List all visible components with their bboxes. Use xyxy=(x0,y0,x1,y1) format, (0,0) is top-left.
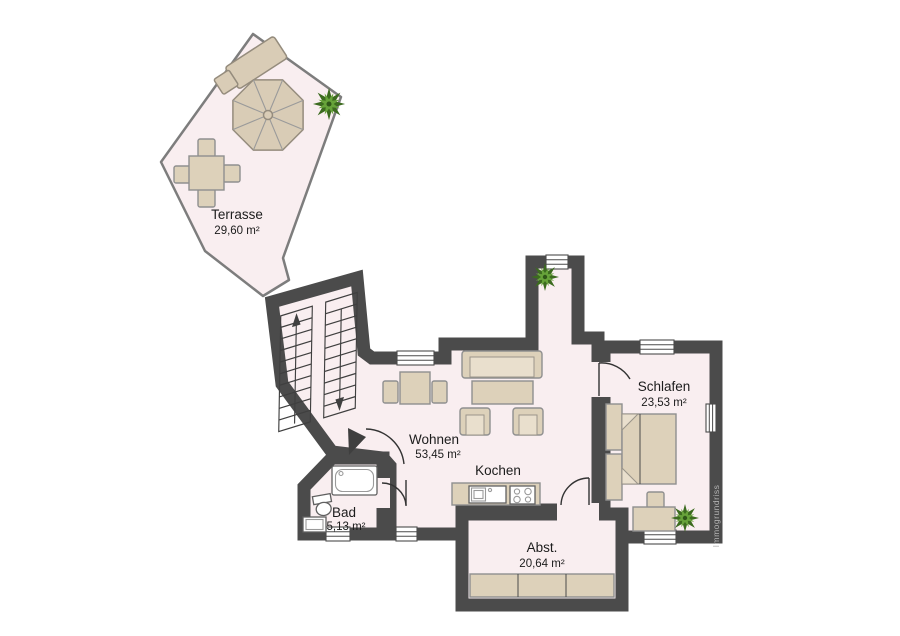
window xyxy=(397,351,434,365)
desk-chair xyxy=(647,492,664,508)
sofa xyxy=(462,351,542,378)
armchair xyxy=(513,408,543,435)
door-opening-abstellraum xyxy=(557,503,599,521)
floor-plan-canvas: Terrasse 29,60 m² Wohnen 53,45 m² Kochen… xyxy=(0,0,900,636)
window xyxy=(644,530,676,544)
patio-chair xyxy=(198,139,215,157)
armchair xyxy=(460,408,490,435)
room-label-terrasse: Terrasse xyxy=(211,207,263,222)
stove-icon xyxy=(510,486,535,504)
dining-chair xyxy=(432,381,447,403)
patio-chair xyxy=(223,165,240,182)
plant-icon xyxy=(313,88,345,120)
plant-icon xyxy=(531,263,559,291)
room-area-wohnen: 53,45 m² xyxy=(415,449,461,461)
bed xyxy=(622,414,676,484)
nightstand xyxy=(606,454,622,500)
wall-niche xyxy=(706,404,716,432)
bathtub-icon xyxy=(332,466,377,495)
room-label-abstellraum: Abst. xyxy=(527,540,558,555)
coffee-table xyxy=(472,381,533,404)
patio-chair xyxy=(198,189,215,207)
kitchen-counter xyxy=(452,483,540,505)
room-label-kochen: Kochen xyxy=(475,463,521,478)
room-label-schlafen: Schlafen xyxy=(638,379,691,394)
desk xyxy=(633,507,675,531)
plant-icon xyxy=(671,504,699,532)
floor-plan: Terrasse 29,60 m² Wohnen 53,45 m² Kochen… xyxy=(0,0,900,636)
door-opening-schlafen xyxy=(591,362,611,397)
room-area-abstellraum: 20,64 m² xyxy=(519,558,565,570)
patio-table xyxy=(189,156,224,190)
room-area-schlafen: 23,53 m² xyxy=(641,397,687,409)
nightstand xyxy=(606,404,622,450)
window xyxy=(396,527,417,541)
washbasin-icon xyxy=(303,517,326,532)
dining-table xyxy=(400,372,430,404)
room-label-wohnen: Wohnen xyxy=(409,432,459,447)
window xyxy=(640,340,674,354)
watermark: Immogrundriss xyxy=(711,485,721,548)
kitchen-sink-icon xyxy=(469,486,506,503)
wardrobe xyxy=(470,574,614,597)
dining-chair xyxy=(383,381,398,403)
room-area-terrasse: 29,60 m² xyxy=(214,225,260,237)
room-area-bad: 5,13 m² xyxy=(327,521,366,533)
room-label-bad: Bad xyxy=(332,505,356,520)
room-terrasse xyxy=(161,34,345,296)
window xyxy=(546,255,568,269)
